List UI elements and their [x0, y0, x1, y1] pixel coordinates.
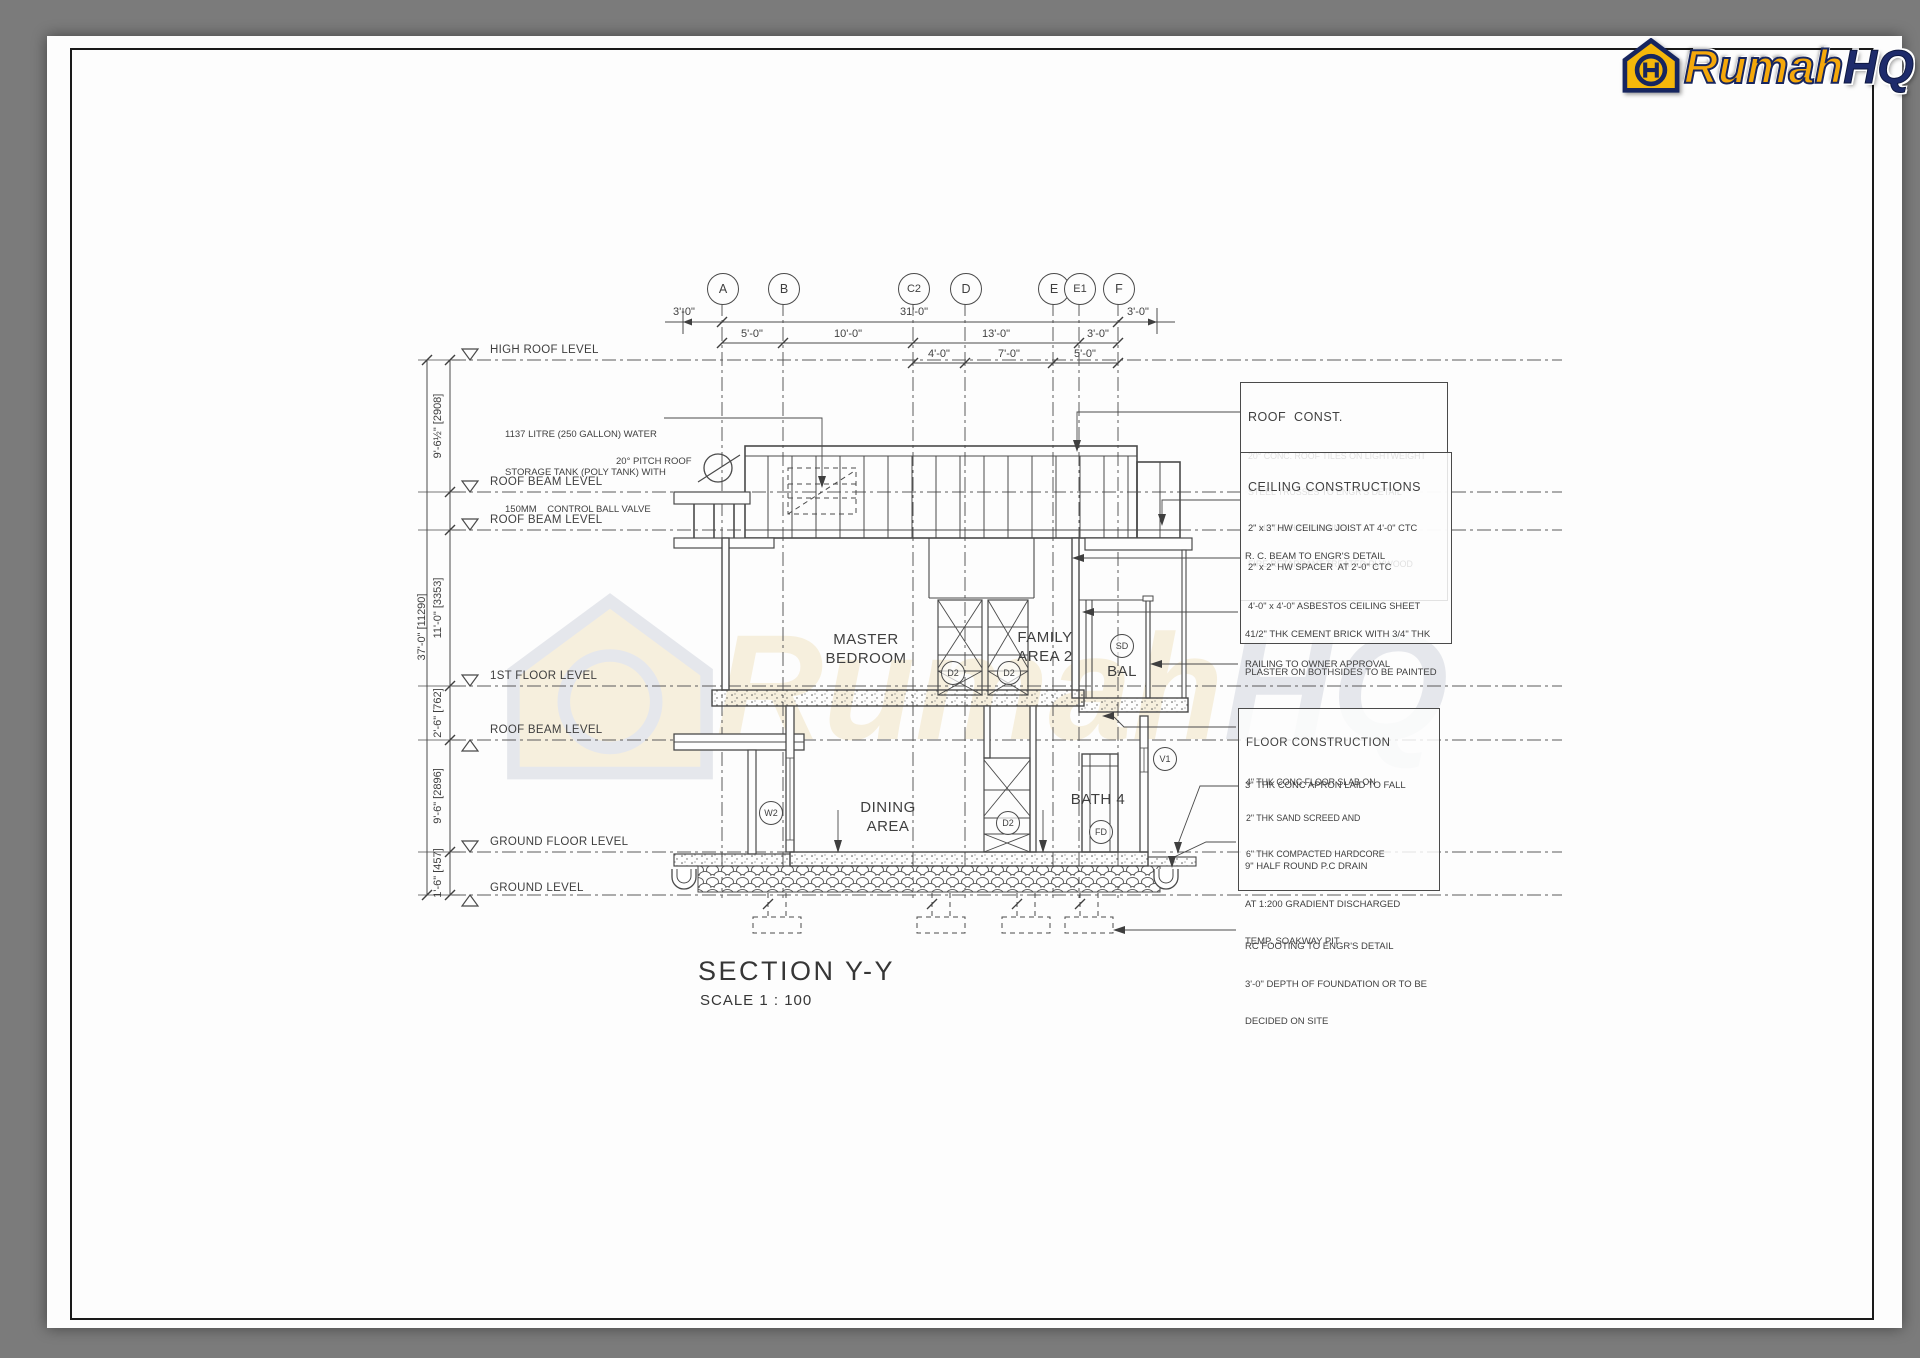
dim-d-e: 7'-0" [985, 348, 1033, 360]
dim-e-f: 5'-0" [1061, 348, 1109, 360]
dim-c2-d: 4'-0" [915, 348, 963, 360]
grid-bubble-c2: C2 [898, 273, 930, 305]
note-pitch-roof: 20° PITCH ROOF [616, 456, 692, 469]
drawing-sheet-stage: RumahHQ [0, 0, 1920, 1358]
drawing-title: SECTION Y-Y [698, 956, 895, 987]
note-roof-const-title: ROOF CONST. [1248, 411, 1440, 424]
grid-bubble-b: B [768, 273, 800, 305]
ceiling-line1: 2" x 3" HW CEILING JOIST AT 4'-0" CTC [1248, 521, 1444, 535]
rumahhq-logo: RumahHQ [1622, 38, 1914, 94]
dim-a-b: 5'-0" [727, 328, 777, 340]
room-dining-area: DINING AREA [828, 798, 948, 836]
room-master-bedroom: MASTER BEDROOM [796, 630, 936, 668]
room-bath-4: BATH 4 [1048, 790, 1148, 809]
tag-sliding-door-sd: SD [1110, 634, 1134, 658]
footing-line2: 3'-0" DEPTH OF FOUNDATION OR TO BE [1245, 979, 1427, 992]
tag-door-d2-upper-2: D2 [997, 661, 1021, 685]
dim-left-3ft: 3'-0" [664, 306, 704, 318]
dim-b-c2: 10'-0" [820, 328, 876, 340]
logo-word1: Rumah [1684, 39, 1843, 94]
note-ceiling-title: CEILING CONSTRUCTIONS [1248, 481, 1444, 494]
grid-bubble-d: D [950, 273, 982, 305]
vdim-seg-5: 1'-6" [457] [431, 798, 445, 948]
level-ground: GROUND LEVEL [490, 882, 584, 894]
dim-c2-e1: 13'-0" [968, 328, 1024, 340]
drain-line2: AT 1:200 GRADIENT DISCHARGED [1245, 899, 1400, 912]
note-water-tank-line1: 1137 LITRE (250 GALLON) WATER [505, 429, 666, 442]
tag-vent-v1: V1 [1153, 747, 1177, 771]
note-water-tank: 1137 LITRE (250 GALLON) WATER STORAGE TA… [505, 404, 666, 542]
level-ground-floor: GROUND FLOOR LEVEL [490, 836, 628, 848]
note-floor-title: FLOOR CONSTRUCTION [1246, 737, 1432, 750]
grid-bubble-e1: E1 [1064, 273, 1096, 305]
brick-line1: 41/2" THK CEMENT BRICK WITH 3/4" THK [1245, 629, 1437, 642]
dim-e1-f: 3'-0" [1074, 328, 1122, 340]
note-apron: 3" THK CONC APRON LAID TO FALL [1245, 780, 1406, 793]
note-railing: RAILING TO OWNER APPROVAL [1245, 659, 1390, 672]
note-rc-beam: R. C. BEAM TO ENGR'S DETAIL [1245, 551, 1385, 564]
level-high-roof: HIGH ROOF LEVEL [490, 344, 599, 356]
dim-total-31ft: 31'-0" [888, 306, 940, 318]
note-rc-footing: RC FOOTING TO ENGR'S DETAIL 3'-0" DEPTH … [1245, 916, 1427, 1054]
vdim-seg-1: 9'-6½" [2908] [431, 351, 445, 501]
house-icon [1622, 38, 1680, 94]
tag-window-w2: W2 [759, 801, 783, 825]
footing-line3: DECIDED ON SITE [1245, 1016, 1427, 1029]
dim-right-3ft: 3'-0" [1118, 306, 1158, 318]
footing-line1: RC FOOTING TO ENGR'S DETAIL [1245, 941, 1427, 954]
tag-floor-drain-fd: FD [1089, 820, 1113, 844]
note-cement-brick: 41/2" THK CEMENT BRICK WITH 3/4" THK PLA… [1245, 604, 1437, 704]
tag-door-d2-upper-1: D2 [941, 661, 965, 685]
logo-word2: HQ [1843, 39, 1914, 94]
grid-bubble-f: F [1103, 273, 1135, 305]
note-water-tank-line3: 150MM CONTROL BALL VALVE [505, 504, 666, 517]
grid-bubble-a: A [707, 273, 739, 305]
room-balcony: BAL [1096, 662, 1148, 681]
level-roof-beam-gf: ROOF BEAM LEVEL [490, 724, 603, 736]
floor-line2: 2" THK SAND SCREED AND [1246, 813, 1432, 824]
drawing-scale: SCALE 1 : 100 [700, 992, 812, 1009]
tag-door-d2-ground: D2 [996, 811, 1020, 835]
vdim-total: 37'-0" [11290] [415, 552, 429, 702]
drain-line1: 9" HALF ROUND P.C DRAIN [1245, 861, 1400, 874]
level-1st-floor: 1ST FLOOR LEVEL [490, 670, 597, 682]
